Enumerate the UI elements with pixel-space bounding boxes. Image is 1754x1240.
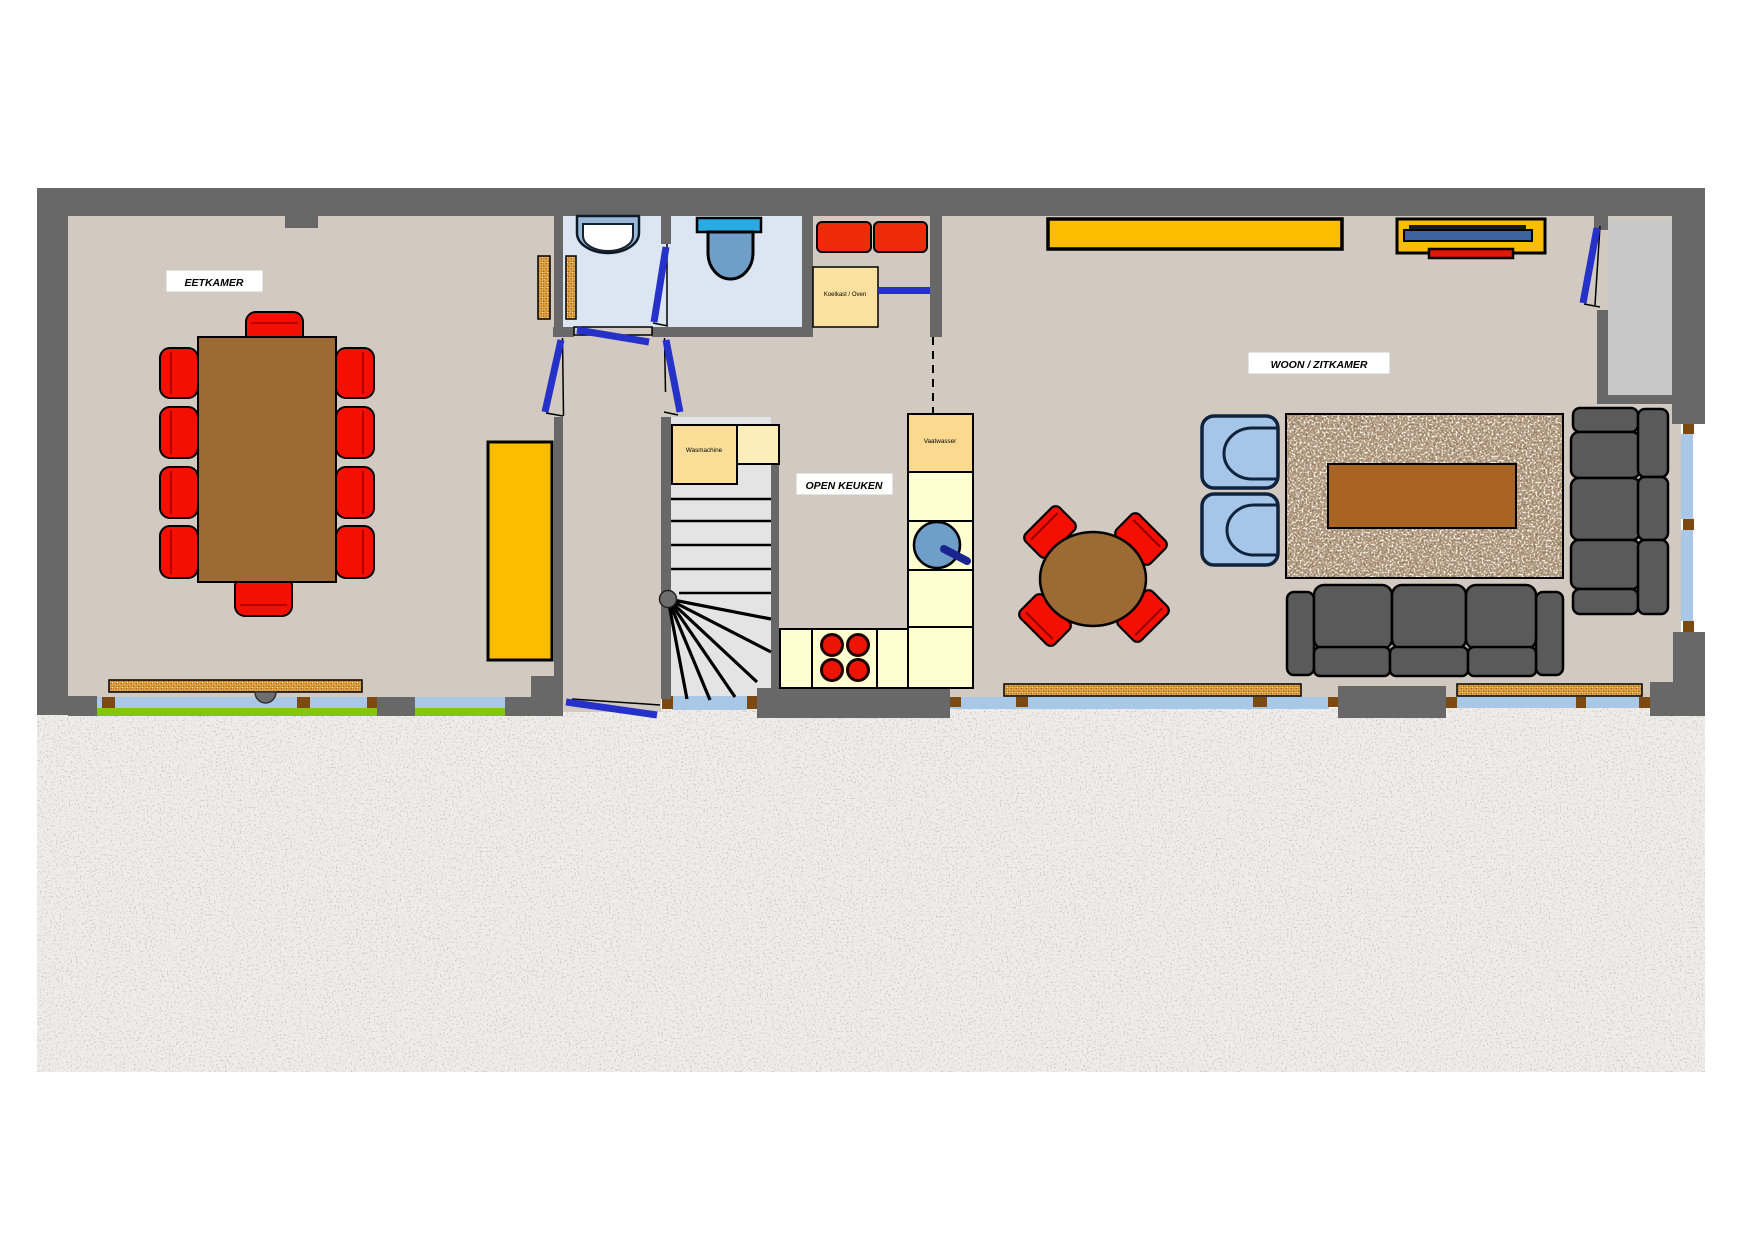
svg-text:Vaatwasser: Vaatwasser <box>924 438 956 445</box>
svg-text:OPEN KEUKEN: OPEN KEUKEN <box>805 480 882 492</box>
svg-text:Wasmachine: Wasmachine <box>686 447 723 454</box>
svg-text:WOON / ZITKAMER: WOON / ZITKAMER <box>1271 359 1368 371</box>
svg-text:Koelkast / Oven: Koelkast / Oven <box>824 292 866 298</box>
svg-text:EETKAMER: EETKAMER <box>185 277 244 289</box>
